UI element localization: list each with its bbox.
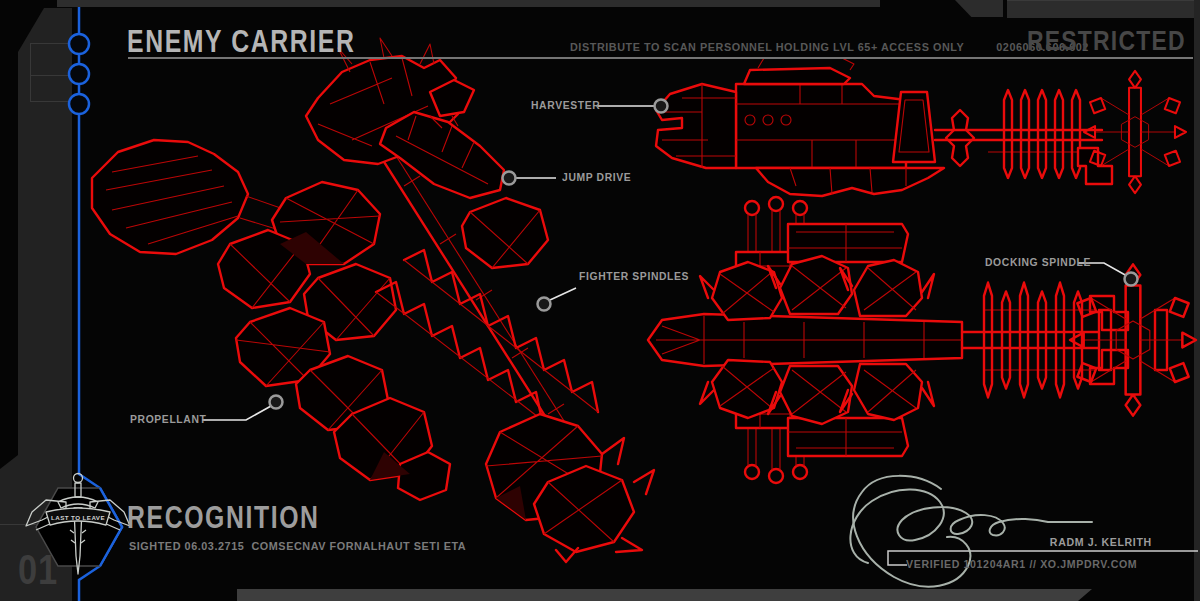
sighting-info: SIGHTED 06.03.2715 COMSECNAV FORNALHAUT … bbox=[129, 540, 466, 552]
callout-label-fighter-spindles: FIGHTER SPINDLES bbox=[579, 270, 689, 282]
carrier-side-profile-wireframe bbox=[656, 58, 1186, 196]
classification-banner: RESTRICTED bbox=[1027, 25, 1186, 57]
verification-line: VERIFIED 101204AR1 // XO.JMPDRV.COM bbox=[906, 558, 1137, 570]
distribution-row: DISTRIBUTE TO SCAN PERSONNEL HOLDING LVL… bbox=[570, 41, 1089, 53]
frame-node bbox=[69, 64, 89, 84]
frame-node bbox=[69, 34, 89, 54]
signature bbox=[850, 476, 1092, 587]
callout-label-harvester: HARVESTER bbox=[531, 99, 600, 111]
recognition-poster: LAST TO LEAVE ENEMY CARRIER DISTRIBUTE T… bbox=[0, 0, 1200, 601]
callout-label-docking-spindle: DOCKING SPINDLE bbox=[985, 256, 1091, 268]
callout-dot-propellant bbox=[270, 396, 283, 409]
frame-node bbox=[69, 94, 89, 114]
distribution-notice: DISTRIBUTE TO SCAN PERSONNEL HOLDING LVL… bbox=[570, 41, 964, 53]
callout-dot-jump-drive bbox=[503, 172, 516, 185]
section-title: RECOGNITION bbox=[127, 500, 320, 536]
carrier-top-plan-wireframe bbox=[648, 197, 1196, 483]
callout-dot-docking-spindle bbox=[1125, 273, 1138, 286]
signer-name: RADM J. KELRITH bbox=[1050, 536, 1152, 548]
page-title: ENEMY CARRIER bbox=[127, 24, 355, 60]
callout-label-jump-drive: JUMP DRIVE bbox=[562, 171, 631, 183]
callout-label-propellant: PROPELLANT bbox=[130, 413, 206, 425]
carrier-oblique-wireframe bbox=[92, 38, 654, 562]
callout-dot-harvester bbox=[655, 100, 668, 113]
badge-motto: LAST TO LEAVE bbox=[51, 515, 105, 521]
callout-dot-fighter-spindles bbox=[538, 298, 551, 311]
page-number: 01 bbox=[18, 546, 58, 594]
